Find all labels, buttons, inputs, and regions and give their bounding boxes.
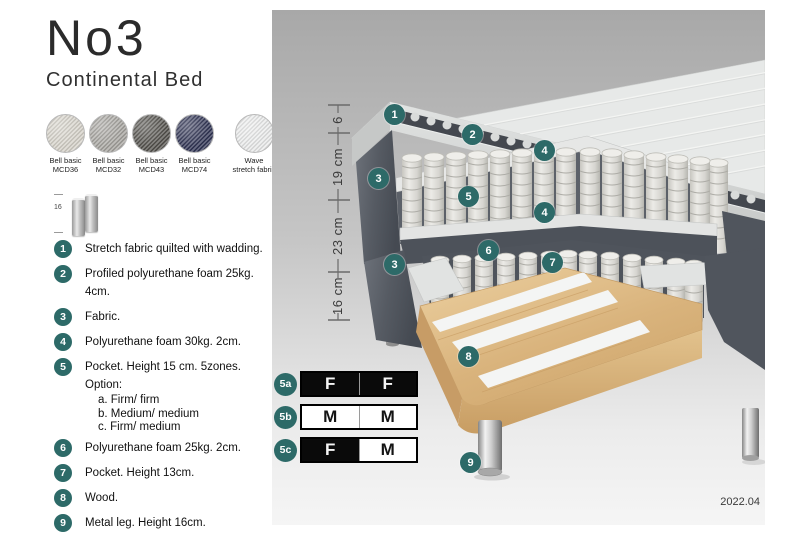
firmness-cell: M [359, 406, 417, 428]
item-number-badge: 5 [54, 358, 72, 376]
firmness-badge: 5b [274, 406, 297, 429]
swatch-mcd43: Bell basicMCD43 [132, 114, 171, 174]
fabric-swatch-icon [89, 114, 128, 153]
spec-list: 1 Stretch fabric quilted with wadding. 2… [54, 240, 269, 533]
callout-4-lower: 4 [534, 202, 555, 223]
firmness-cell: M [359, 439, 417, 461]
list-item: 3 Fabric. [54, 308, 269, 326]
item-number-badge: 9 [54, 514, 72, 532]
leg-height-icon: 16 [54, 188, 118, 238]
firmness-row-5c: 5c F M [274, 437, 418, 463]
list-item: 4 Polyurethane foam 30kg. 2cm. [54, 333, 269, 351]
firmness-badge: 5c [274, 439, 297, 462]
firmness-badge: 5a [274, 373, 297, 396]
fabric-swatch-icon [46, 114, 85, 153]
firmness-cell: F [302, 373, 359, 395]
firmness-row-5a: 5a F F [274, 371, 418, 397]
callout-3-upper: 3 [368, 168, 389, 189]
callout-6: 6 [478, 240, 499, 261]
leg-height-label: 16 [54, 204, 62, 211]
dim-label-23: 23 cm [330, 217, 345, 255]
fabric-swatch-icon [175, 114, 214, 153]
illustration-panel: 6 19 cm 23 cm 16 cm [272, 10, 765, 525]
pocket-options: a. Firm/ firm b. Medium/ medium c. Firm/… [98, 394, 269, 434]
list-item: 8 Wood. [54, 489, 269, 507]
firmness-row-5b: 5b M M [274, 404, 418, 430]
title-block: No3 Continental Bed [46, 12, 203, 92]
metal-leg-front [478, 420, 502, 472]
swatch-mcd36: Bell basicMCD36 [46, 114, 85, 174]
list-item: 1 Stretch fabric quilted with wadding. [54, 240, 269, 258]
page-subtitle: Continental Bed [46, 69, 203, 92]
item-number-badge: 8 [54, 489, 72, 507]
callout-3-lower: 3 [384, 254, 405, 275]
callout-4-upper: 4 [534, 140, 555, 161]
list-item: 2 Profiled polyurethane foam 25kg. 4cm. [54, 265, 269, 301]
dim-label-16: 16 cm [330, 277, 345, 315]
firmness-cell: F [302, 439, 359, 461]
item-number-badge: 6 [54, 439, 72, 457]
callout-9: 9 [460, 452, 481, 473]
item-number-badge: 3 [54, 308, 72, 326]
swatch-mcd74: Bell basicMCD74 [175, 114, 214, 174]
item-number-badge: 7 [54, 464, 72, 482]
callout-1: 1 [384, 104, 405, 125]
firmness-cell: F [359, 373, 417, 395]
fabric-swatches: Bell basicMCD36 Bell basicMCD32 Bell bas… [46, 114, 282, 174]
item-number-badge: 4 [54, 333, 72, 351]
dim-label-top: 6 [330, 116, 345, 124]
page: No3 Continental Bed Bell basicMCD36 Bell… [0, 0, 800, 533]
fabric-swatch-icon [132, 114, 171, 153]
firmness-table: 5a F F 5b M M 5c F M [274, 371, 418, 470]
callout-8: 8 [458, 346, 479, 367]
dimension-ruler: 6 19 cm 23 cm 16 cm [328, 105, 350, 320]
swatch-mcd32: Bell basicMCD32 [89, 114, 128, 174]
lower-box-right-fabric [704, 248, 765, 370]
fabric-swatch-icon [235, 114, 274, 153]
page-title: No3 [46, 12, 203, 65]
metal-leg-icon [85, 194, 98, 232]
dim-label-19: 19 cm [330, 148, 345, 186]
callout-5: 5 [458, 186, 479, 207]
metal-leg-right [742, 408, 759, 458]
version-label: 2022.04 [720, 496, 760, 508]
list-item: 5 Pocket. Height 15 cm. 5zones. Option: [54, 358, 269, 394]
item-number-badge: 1 [54, 240, 72, 258]
callout-2: 2 [462, 124, 483, 145]
metal-leg-icon [72, 198, 85, 236]
firmness-cell: M [302, 406, 359, 428]
list-item: 9 Metal leg. Height 16cm. [54, 514, 269, 532]
callout-7: 7 [542, 252, 563, 273]
item-number-badge: 2 [54, 265, 72, 283]
list-item: 7 Pocket. Height 13cm. [54, 464, 269, 482]
list-item: 6 Polyurethane foam 25kg. 2cm. [54, 439, 269, 457]
